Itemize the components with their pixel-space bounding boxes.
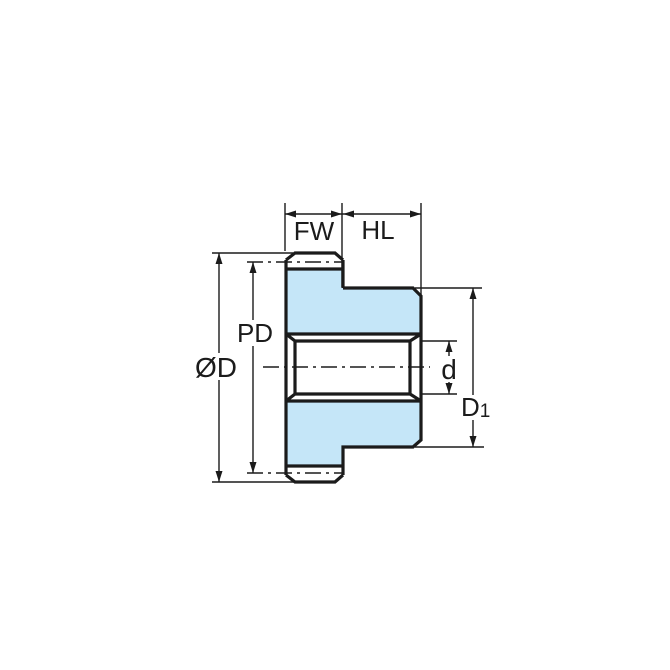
d1-arrow-bottom — [470, 436, 477, 447]
bottom-tooth-outline — [286, 466, 343, 482]
pd-arrow-bottom — [250, 462, 257, 473]
hl-arrow-left — [343, 211, 354, 218]
hub-diameter-base: D — [461, 392, 480, 422]
od-arrow-top — [216, 253, 223, 264]
hl-arrow-right — [410, 211, 421, 218]
hub-length-label: HL — [361, 215, 394, 245]
gear-dimension-diagram: FW HL PD ØD d D1 — [0, 0, 670, 670]
gear-upper-body-fill — [286, 269, 421, 334]
face-width-label: FW — [294, 216, 335, 246]
gear-lower-body-fill — [286, 401, 421, 466]
hub-diameter-subscript: 1 — [480, 401, 491, 422]
od-arrow-bottom — [216, 471, 223, 482]
pitch-diameter-label: PD — [237, 318, 273, 348]
outside-diameter-label: ØD — [195, 352, 237, 383]
pd-arrow-top — [250, 262, 257, 273]
d1-arrow-top — [470, 288, 477, 299]
bore-diameter-label: d — [441, 354, 457, 385]
technical-drawing-canvas: FW HL PD ØD d D1 — [0, 0, 670, 670]
d-arrow-top — [446, 341, 453, 352]
